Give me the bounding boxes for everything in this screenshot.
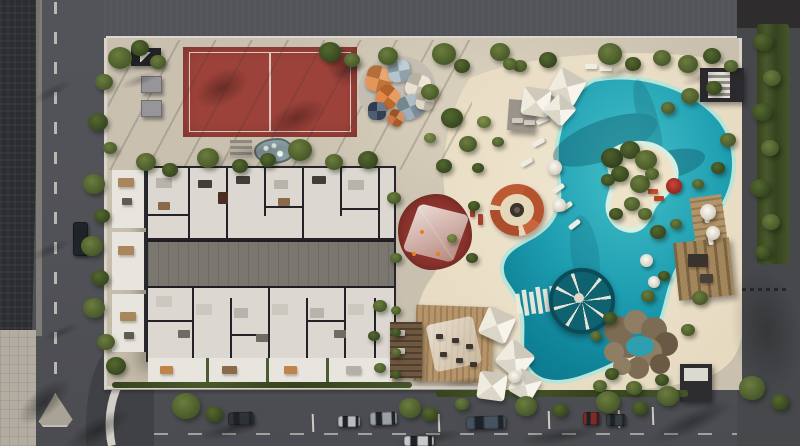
tree [552,403,568,417]
tree [325,154,343,170]
tree [83,298,105,318]
floorplan-wall [306,320,344,322]
floorplan-furniture [236,176,250,184]
tree [739,376,765,399]
tree [358,151,378,169]
curb-tick [774,288,778,291]
outdoor-furniture [456,358,463,363]
tree [391,370,401,379]
tree [391,328,401,337]
stairs-se [684,368,708,381]
patio-west-3 [112,294,146,352]
ping-pong-table-2 [141,100,162,117]
tree [421,84,439,100]
tree [761,140,779,156]
floorplan-furniture [196,304,212,315]
parked-car [228,412,254,426]
floorplan-wall [268,287,270,360]
tree [720,133,736,147]
floorplan-wall [264,206,302,208]
tree [454,59,470,73]
tree [197,148,219,168]
tree [762,214,780,230]
outdoor-furniture [120,312,136,321]
tree [422,407,438,421]
round-umbrella [706,226,720,240]
floorplan-furniture [156,178,172,188]
play-equipment-dot-3 [412,252,416,256]
floorplan-wall [226,168,228,240]
tree [692,291,708,305]
outdoor-furniture [648,189,658,194]
tree [632,401,648,415]
curb-tick [750,288,754,291]
floorplan-furniture [312,176,326,184]
floorplan-wall [344,287,346,360]
outdoor-furniture [436,334,443,339]
floorplan-wall [192,287,194,360]
round-shade-center [574,293,584,303]
outdoor-furniture [600,66,612,71]
tree [447,234,457,243]
round-umbrella [700,204,716,220]
tree [319,42,341,62]
floorplan-furniture [334,330,346,338]
tree [657,386,679,406]
tree [598,43,622,65]
outdoor-furniture [688,254,708,267]
outdoor-furniture [478,214,483,225]
shade-sail-umbrella [476,370,508,402]
tree [94,209,110,223]
tree [162,163,178,177]
tree [288,139,312,161]
floorplan-wall [264,168,266,216]
outdoor-furniture [452,338,459,343]
tree [91,270,109,286]
tree [625,57,641,71]
curb-tick [766,288,770,291]
aerial-site-render [0,0,800,446]
tree [703,48,721,64]
tree [432,43,456,65]
tree [81,236,103,256]
tree [399,398,421,418]
tree [539,52,557,68]
tree [391,348,401,357]
tree [378,47,398,65]
tree [763,70,781,86]
tree [706,81,722,95]
tree [441,108,463,128]
parked-car [466,415,506,429]
outdoor-furniture [440,352,447,357]
tree [136,153,156,171]
tree [771,394,789,410]
tree [95,74,113,90]
tree [172,393,200,418]
tree [678,55,698,73]
outdoor-furniture [346,366,361,374]
tree [106,357,126,375]
tree [97,334,115,350]
hedge-strip [112,382,412,388]
tree [232,159,248,173]
floorplan-furniture [274,180,288,189]
tree [624,197,640,211]
floorplan-furniture [278,198,290,206]
tree [436,159,452,173]
outdoor-furniture [118,178,134,187]
parked-car [370,412,397,426]
round-umbrella [547,160,562,175]
floorplan-furniture [156,296,172,307]
tree [653,50,671,66]
tree [515,396,537,416]
floorplan-furniture [256,334,268,342]
parked-car [404,436,434,446]
tree [635,150,657,170]
floorplan-furniture [158,202,170,210]
tree [344,53,360,67]
outdoor-furniture [512,118,523,123]
tree [753,33,773,51]
tree [596,391,620,413]
tree [626,381,642,395]
patio-west-2 [112,232,146,290]
outdoor-furniture [524,120,535,125]
parked-car [338,416,360,427]
parked-car [583,412,600,425]
outdoor-furniture [585,64,597,69]
playground-canopy [368,102,386,120]
curb-tick [782,288,786,291]
floorplan-wall [340,208,378,210]
floorplan-wall [230,298,232,360]
floorplan-furniture [348,304,364,315]
tree [260,153,276,167]
tree [750,179,770,197]
floorplan-furniture [348,180,364,190]
tree [108,47,132,69]
outdoor-furniture [124,332,134,339]
outdoor-furniture [160,366,173,374]
tree [459,136,477,152]
tree [83,174,105,194]
tree [88,113,108,131]
garden-steps [230,140,252,158]
floorplan-wall [378,168,380,240]
outdoor-furniture [122,198,132,205]
round-umbrella [552,198,566,212]
floorplan-furniture [218,192,228,204]
floorplan-furniture [310,308,324,318]
tree [752,103,772,121]
outdoor-furniture [284,366,297,374]
round-umbrella [640,254,653,267]
floorplan-corridor [148,240,394,288]
curb-tick [758,288,762,291]
outdoor-furniture [118,246,134,255]
floorplan-wall [302,168,304,240]
outdoor-furniture [222,366,237,374]
tree [131,40,149,56]
parked-car [606,414,626,426]
fire-pit-bowl [510,203,524,217]
floorplan-furniture [234,308,248,318]
tree [650,225,666,239]
floorplan-wall [188,168,190,240]
floorplan-furniture [178,330,190,338]
tree [150,55,166,69]
ping-pong-table-1 [141,76,162,93]
floorplan-wall [148,320,192,322]
round-umbrella [508,370,521,383]
play-equipment-dot-2 [436,252,440,256]
floorplan-furniture [198,180,212,188]
tree [681,88,699,104]
outdoor-furniture [700,274,713,283]
play-equipment-dot-1 [420,230,424,234]
outdoor-furniture [470,362,477,367]
tree [391,306,401,315]
floorplan-wall [148,214,188,216]
outdoor-furniture [654,196,664,201]
curb-tick [742,288,746,291]
floorplan-wall [306,298,308,360]
tree [755,245,771,259]
hedge-strip [436,390,688,397]
island-red-umbrella [666,178,682,194]
court-center-line [269,53,271,131]
outdoor-furniture [466,344,473,349]
tree [205,406,223,422]
floorplan-furniture [272,304,288,315]
